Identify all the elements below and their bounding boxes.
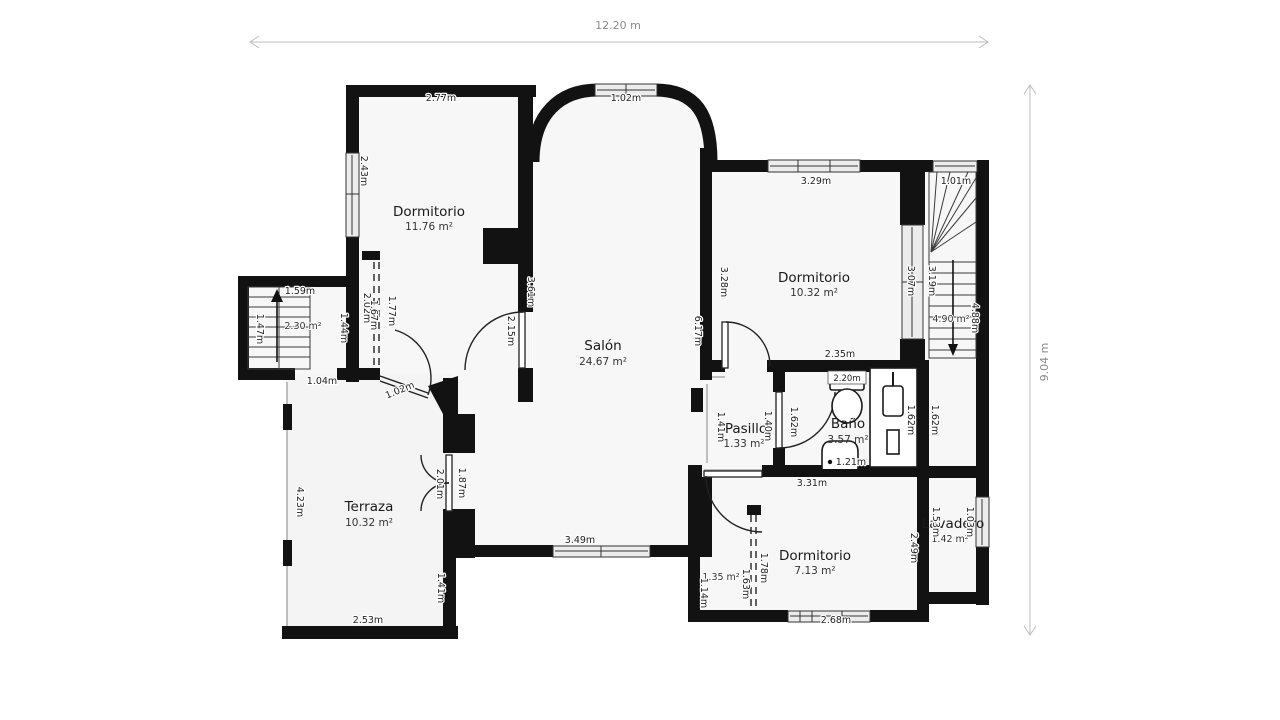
dim-stairs-left-top: 1.59m xyxy=(285,286,315,297)
dim-bano-side: 1.62m xyxy=(929,405,940,435)
dim-terraza-right: 1.41m xyxy=(435,573,446,603)
floor-plan-page: 12.20 m 9.04 m Dormitorio 11.76 m² Salón… xyxy=(0,0,1280,720)
dim-pasillo-left: 1.41m xyxy=(715,412,726,442)
dim-bano-top: 2.20m xyxy=(833,374,860,384)
dim-closet-inner: 1.63m xyxy=(740,569,751,599)
dim-closet-left: 1.14m xyxy=(698,578,709,608)
dim-tl-closet-b: 1.67m xyxy=(368,300,379,330)
dim-pasillo-right: 1.40m xyxy=(762,411,773,441)
overall-height-label: 9.04 m xyxy=(1038,343,1051,382)
floor-plan-canvas: 12.20 m 9.04 m Dormitorio 11.76 m² Salón… xyxy=(0,0,1280,720)
dim-terraza-left: 4.23m xyxy=(294,487,305,517)
dim-terraza-french-right: 1.87m xyxy=(456,468,467,498)
dim-tr-left-wall: 3.28m xyxy=(718,267,729,297)
dim-br-right: 2.49m xyxy=(908,533,919,563)
dim-stairs-right-top: 1.01m xyxy=(941,176,971,187)
dim-tl-closet-dash: 1.77m xyxy=(386,296,397,326)
room-area-dormitorio-bottom: 7.13 m² xyxy=(794,565,835,577)
room-area-dormitorio-tr: 10.32 m² xyxy=(790,287,838,299)
dim-terraza-bottom: 2.53m xyxy=(353,615,383,626)
dim-closet-dash: 1.78m xyxy=(758,553,769,583)
dim-tl-window: 2.43m xyxy=(358,156,369,186)
dim-br-top: 3.31m xyxy=(797,478,827,489)
dim-tl-wall-salon: 3.61m xyxy=(525,277,536,307)
dim-tl-door: 2.15m xyxy=(505,316,516,346)
room-label-pasillo: Pasillo xyxy=(725,421,767,437)
room-area-stairwell-right: 4.90 m² xyxy=(932,314,969,325)
dim-stairs-left-exit: 1.04m xyxy=(307,376,337,387)
dim-tr-bottom: 2.35m xyxy=(825,349,855,360)
room-area-stairwell-left: 2.30 m² xyxy=(284,321,321,332)
overall-width-label: 12.20 m xyxy=(595,19,641,32)
dim-lavadero-right: 1.03m xyxy=(964,507,975,537)
dim-tl-top: 2.77m xyxy=(426,93,456,104)
room-area-bano: 3.57 m² xyxy=(827,434,868,446)
dim-salon-bottom-window: 3.49m xyxy=(565,535,595,546)
dim-lavadero-left: 1.53m xyxy=(930,507,941,537)
dim-bano-door: 1.62m xyxy=(788,407,799,437)
room-area-terraza: 10.32 m² xyxy=(345,517,393,529)
room-label-dormitorio-tl: Dormitorio xyxy=(393,204,465,220)
room-label-dormitorio-bottom: Dormitorio xyxy=(779,548,851,564)
window-tr-top xyxy=(768,160,860,172)
room-label-terraza: Terraza xyxy=(344,499,394,515)
dim-bano-shower: 1.21m xyxy=(836,457,866,468)
dim-stairs-landing: 1.44m xyxy=(338,313,349,343)
dim-bano-vanity: 1.62m xyxy=(905,405,916,435)
window-tl-left xyxy=(346,153,359,237)
room-area-pasillo: 1.33 m² xyxy=(723,438,764,450)
dim-stairs-left-side: 1.47m xyxy=(254,314,265,344)
window-stairs-top xyxy=(933,161,977,172)
room-area-dormitorio-tl: 11.76 m² xyxy=(405,221,453,233)
room-label-salon: Salón xyxy=(584,338,621,354)
dim-stairs-right-height: 4.88m xyxy=(969,303,980,333)
dim-tr-top-window: 3.29m xyxy=(801,176,831,187)
dim-br-bottom-window: 2.68m xyxy=(821,615,851,626)
room-area-salon: 24.67 m² xyxy=(579,356,627,368)
dim-terraza-french-left: 2.01m xyxy=(434,469,445,499)
room-label-bano: Baño xyxy=(831,416,865,432)
room-label-dormitorio-tr: Dormitorio xyxy=(778,270,850,286)
window-salon-bottom xyxy=(553,546,650,557)
dim-tr-right-window: 3.07m xyxy=(905,266,916,296)
dim-salon-arch-window: 1.02m xyxy=(611,93,641,104)
dim-stairs-right-run: 3.19m xyxy=(926,266,937,296)
dim-salon-right-wall: 6.17m xyxy=(692,316,703,346)
